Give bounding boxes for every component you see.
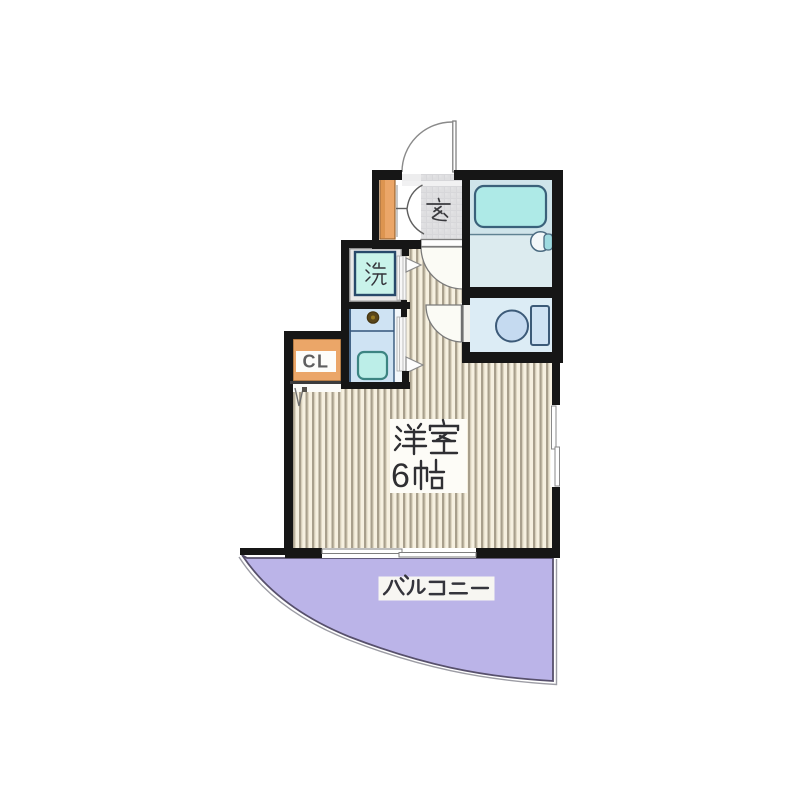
svg-text:CL: CL — [303, 352, 330, 372]
svg-text:6: 6 — [391, 457, 410, 495]
